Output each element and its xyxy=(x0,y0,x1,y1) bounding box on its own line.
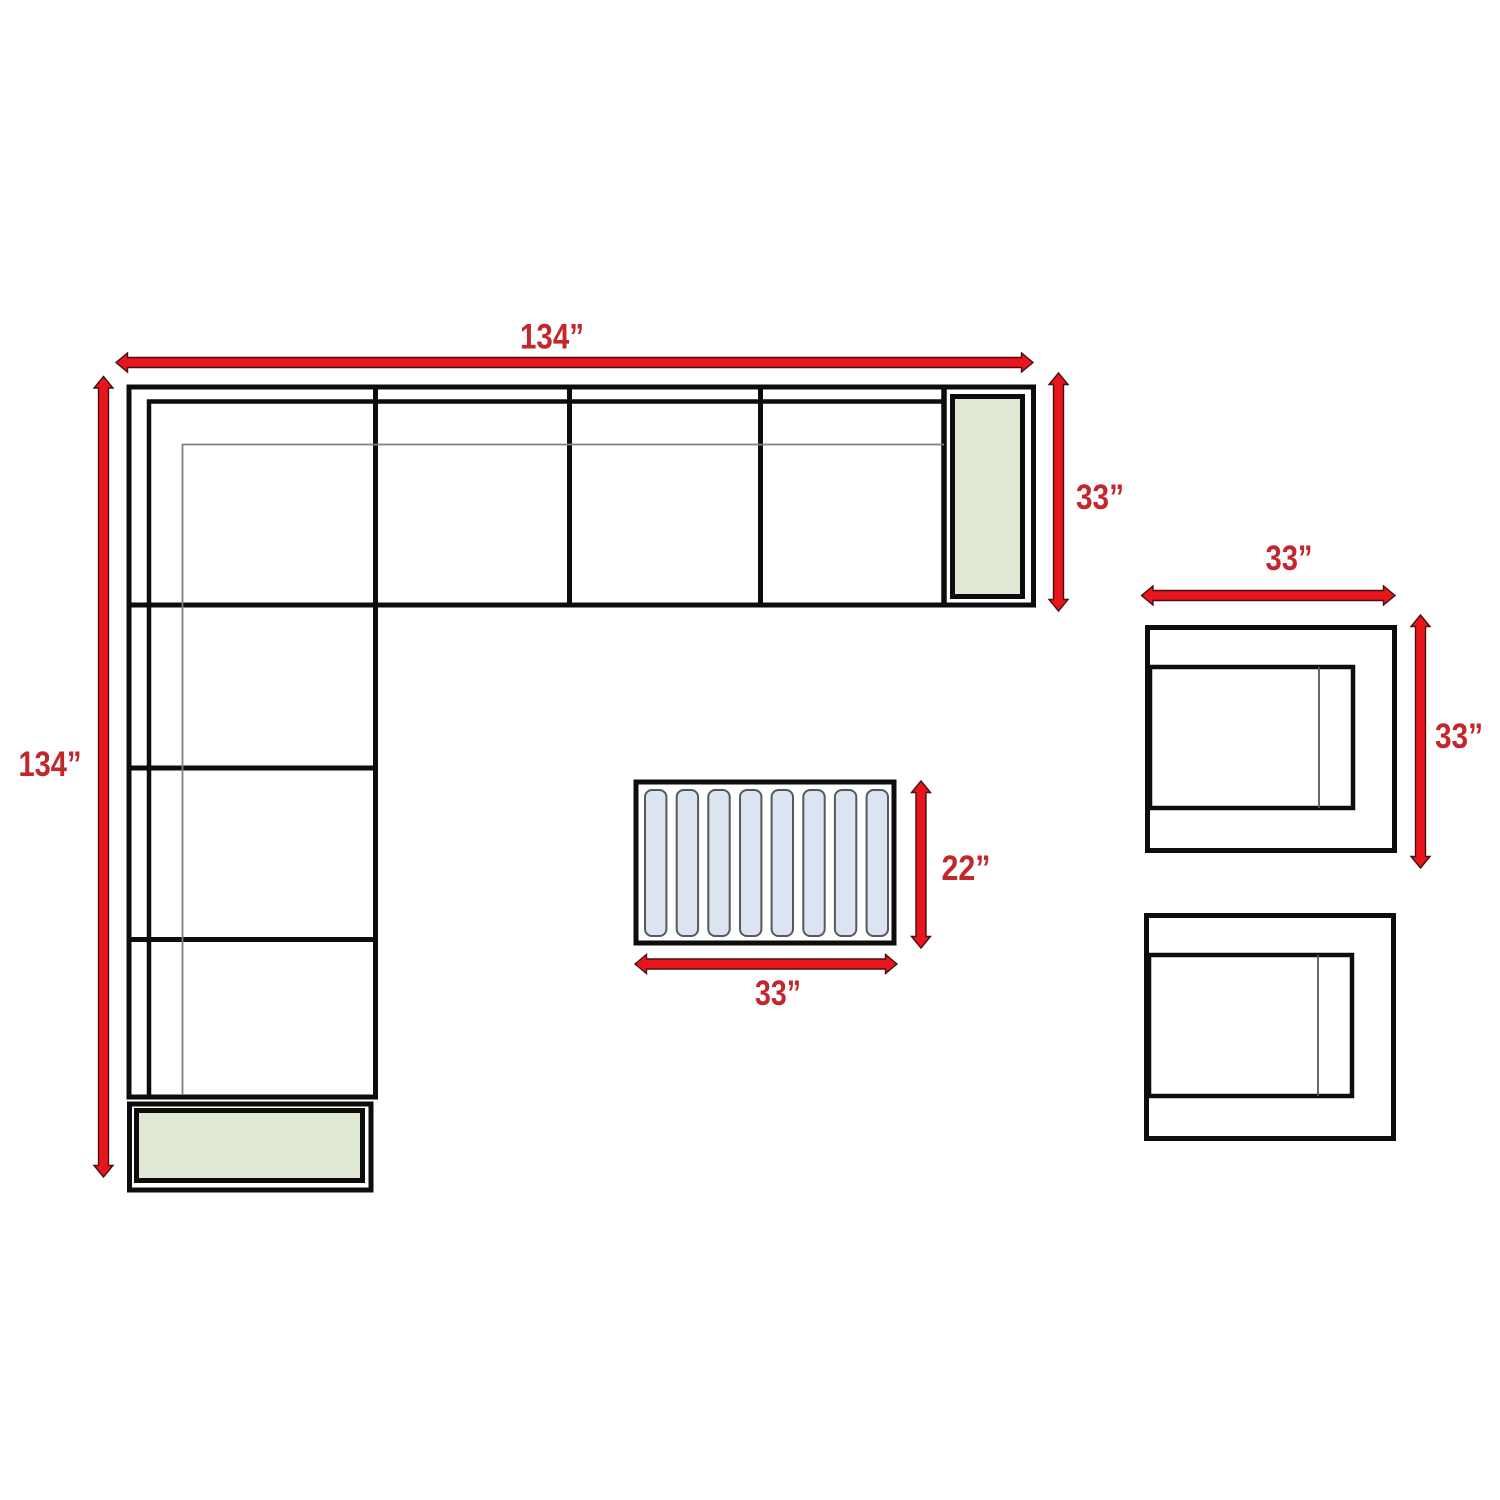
svg-text:134”: 134” xyxy=(19,745,82,784)
svg-text:33”: 33” xyxy=(1266,539,1313,578)
svg-text:134”: 134” xyxy=(520,318,584,357)
svg-text:33”: 33” xyxy=(1076,478,1124,517)
svg-text:33”: 33” xyxy=(755,974,801,1013)
svg-text:22”: 22” xyxy=(942,849,991,888)
svg-text:33”: 33” xyxy=(1435,717,1483,756)
